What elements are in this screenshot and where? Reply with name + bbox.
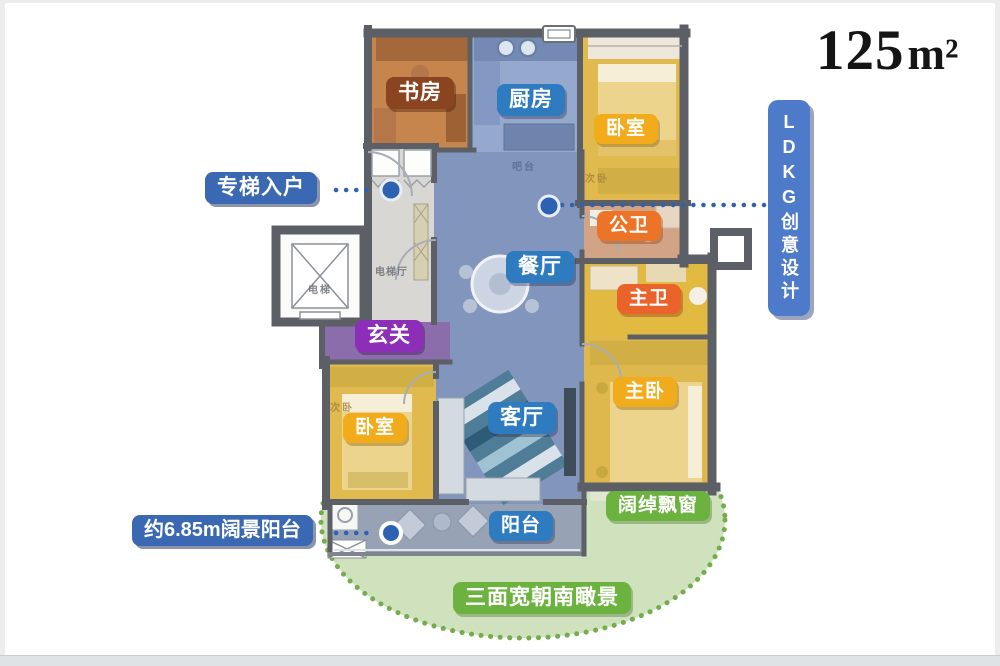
bedroom-top-baywindow [588, 35, 682, 59]
frame-edge-top [0, 0, 1000, 3]
secondary-bedroom-left-text: 次卧 [330, 399, 354, 414]
room-label-study: 书房 [386, 77, 454, 109]
badge-wide-balcony: 约6.85m阔景阳台 [132, 515, 313, 546]
frame-edge-right [995, 0, 1000, 666]
secondary-bedroom-right-text: 次卧 [585, 170, 609, 185]
room-label-living: 客厅 [488, 402, 556, 434]
anchor-dot-ldkg [539, 196, 559, 216]
frame-edge-left [0, 0, 5, 666]
frame-edge-bottom [0, 655, 1000, 666]
anchor-dot-entry [381, 180, 401, 200]
elevator-hall-text: 电梯厅 [375, 263, 408, 278]
badge-private-elevator: 专梯入户 [205, 172, 317, 204]
room-label-balcony: 阳台 [489, 511, 553, 541]
badge-bay-window: 阔绰飘窗 [606, 491, 710, 521]
room-label-bedroom-top: 卧室 [594, 114, 658, 144]
room-label-public-bath: 公卫 [597, 211, 661, 241]
room-label-master-bath: 主卫 [617, 284, 681, 314]
badge-south-view: 三面宽朝南瞰景 [453, 582, 631, 614]
elevator-text: 电梯 [308, 281, 332, 296]
room-label-master-bedroom: 主卧 [613, 377, 677, 407]
bar-counter-text: 吧台 [512, 158, 536, 173]
anchor-dot-balcony [381, 523, 401, 543]
room-label-bedroom-left: 卧室 [343, 413, 407, 443]
room-label-foyer: 玄关 [355, 320, 423, 352]
area-label: 125m² [816, 18, 958, 83]
area-number: 125 [816, 19, 905, 82]
area-unit: m² [908, 29, 959, 79]
floorplan-page: 电梯 电梯厅 吧台 次卧 次卧 书房 厨房 卧室 公卫 餐厅 主卫 玄关 主卧 … [0, 0, 1000, 666]
room-label-kitchen: 厨房 [497, 84, 565, 116]
badge-ldkg: LDKG创意设计 [768, 100, 810, 316]
room-label-dining: 餐厅 [506, 251, 574, 283]
